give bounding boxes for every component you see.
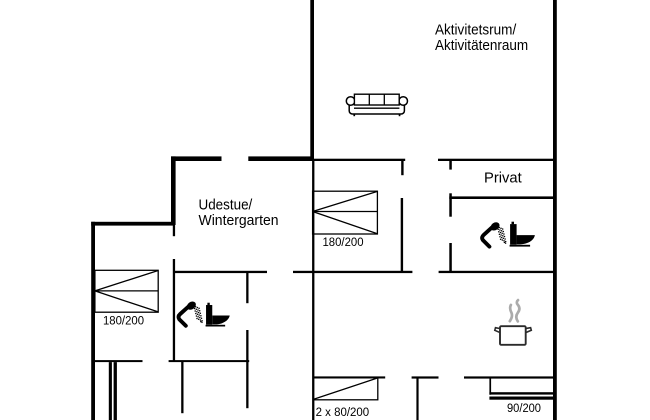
svg-text:180/200: 180/200 — [103, 314, 144, 328]
svg-text:90/200: 90/200 — [507, 401, 541, 415]
svg-text:2 x 80/200: 2 x 80/200 — [316, 405, 370, 419]
svg-text:Privat: Privat — [484, 171, 522, 187]
svg-text:180/200: 180/200 — [323, 235, 364, 249]
svg-text:Udestue/: Udestue/ — [199, 198, 254, 214]
svg-text:Wintergarten: Wintergarten — [199, 213, 279, 229]
svg-text:Aktivitetsrum/: Aktivitetsrum/ — [435, 22, 517, 38]
svg-text:Aktivitätenraum: Aktivitätenraum — [435, 38, 528, 54]
